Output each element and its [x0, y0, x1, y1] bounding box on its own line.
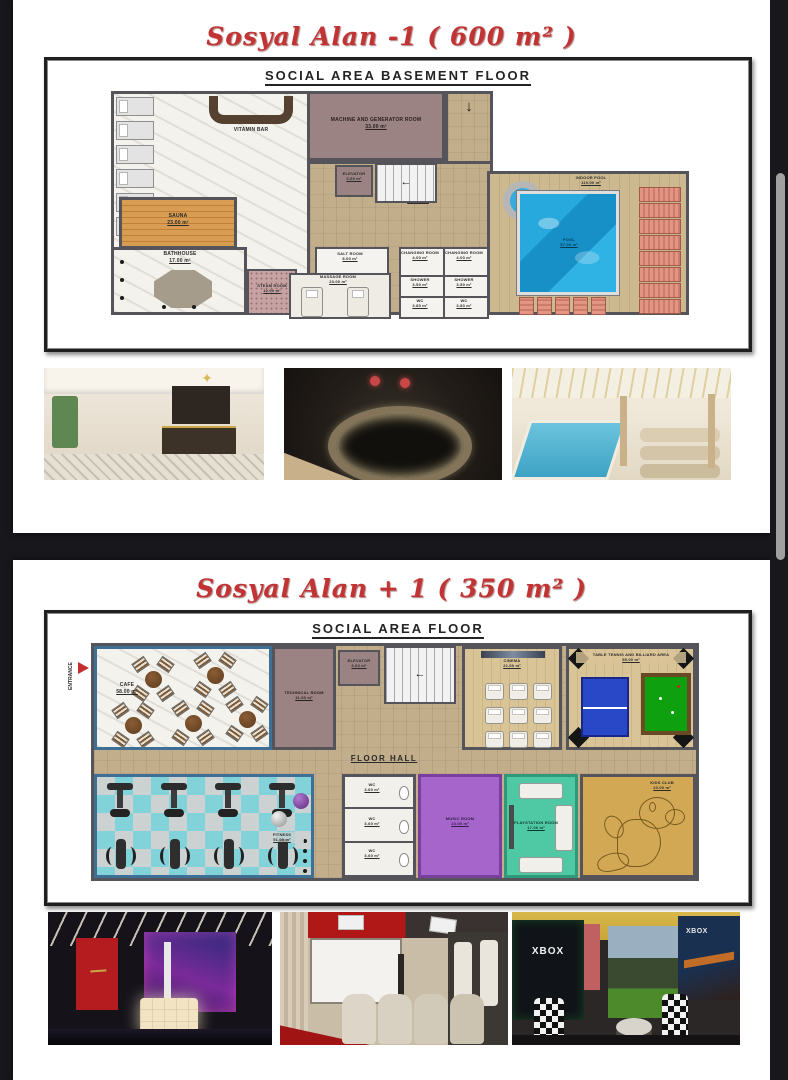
massage-bed [347, 287, 369, 317]
basement-floor-plan: LOUNGE43.00 m² VITAMIN BAR MACHINE AND G… [111, 91, 689, 315]
recliner-seats [342, 994, 376, 1044]
page2-title: Sosyal Alan + 1 ( 350 m² ) [13, 574, 770, 603]
cinema-seat [509, 707, 528, 724]
pink-wall-strip [584, 924, 600, 990]
billiard-table [641, 673, 691, 735]
toilet [399, 853, 409, 867]
cinema-seat [485, 731, 504, 748]
sofa [519, 857, 563, 873]
stair-arrow-icon: ← [386, 668, 454, 680]
shower-2-label: SHOWER3.50 m² [444, 277, 484, 288]
pool-lounger [537, 297, 552, 315]
stool [120, 278, 124, 282]
kids-club-label: KIDS CLUB23.00 m² [638, 780, 686, 791]
stair-arrow-icon: ← [377, 176, 435, 188]
marble-floor [44, 454, 264, 480]
wc-c-label: WC3.60 m² [352, 848, 392, 859]
cinema-seat [485, 683, 504, 700]
page-basement: Sosyal Alan -1 ( 600 m² ) SOCIAL AREA BA… [13, 0, 770, 533]
indoor-pool-photo [512, 368, 731, 480]
wc-a-label: WC3.60 m² [352, 782, 392, 793]
room-cafe [94, 646, 272, 750]
scrollbar-thumb[interactable] [776, 173, 785, 560]
lounger [116, 145, 154, 164]
round-table [616, 1018, 652, 1036]
lounger [116, 97, 154, 116]
xbox-logo-text: XBOX [686, 928, 708, 935]
moss-wall [52, 396, 78, 448]
ac-cassette [338, 915, 364, 930]
lounger [116, 121, 154, 140]
cinema-seat [533, 683, 552, 700]
chandelier-icon: ✦ [192, 370, 222, 390]
exercise-bike [161, 783, 189, 817]
wc-1-label: WC3.80 m² [400, 298, 440, 309]
stool [120, 260, 124, 264]
glossy-floor [48, 1029, 272, 1045]
jacuzzi-photo [284, 368, 502, 480]
cafe-table [225, 697, 269, 741]
cafe-table [171, 701, 215, 745]
xbox-room-photo: XBOX XBOX [512, 912, 740, 1045]
pool-label: POOL57.00 m² [541, 237, 597, 248]
gold-v-logo-icon [90, 959, 107, 972]
changing-1-label: CHANGING ROOM4.00 m² [400, 250, 440, 261]
exercise-bike [215, 783, 243, 817]
room-fitness [94, 774, 314, 878]
fitness-label: FITNESS51.00 m² [260, 832, 304, 843]
bathhouse-label: BATHHOUSE17.00 m² [145, 251, 215, 265]
ceiling [44, 368, 264, 394]
pool-lounger [555, 297, 570, 315]
indoor-pool-label: INDOOR POOL110.00 m² [541, 175, 641, 186]
racing-screen-right: XBOX [678, 916, 740, 1000]
social-floor-plan: ENTRANCE CAFE58.00 m² TECHNICAL ROOM11.0… [91, 643, 699, 881]
night-club-photo [48, 912, 272, 1045]
pool-lounger [573, 297, 588, 315]
sauna-label: SAUNA23.00 m² [141, 213, 215, 227]
cinema-seat [509, 683, 528, 700]
pool-lounger [639, 203, 681, 218]
wc-b-label: WC3.60 m² [352, 816, 392, 827]
home-cinema-photo [280, 912, 508, 1045]
weight [303, 869, 307, 873]
technical-room-label: TECHNICAL ROOM11.00 m² [276, 690, 332, 701]
spa-reception-photo: ✦ [44, 368, 264, 480]
pool-lounger [639, 267, 681, 282]
treadmill [160, 839, 190, 873]
weight [303, 859, 307, 863]
entrance-arrow-icon [78, 662, 89, 674]
elevator-2-label: ELEVATOR3.60 m² [338, 658, 380, 669]
exercise-ball-silver [271, 811, 287, 827]
changing-2-label: CHANGING ROOM4.00 m² [444, 250, 484, 261]
ramp-corridor: ↓ [445, 91, 493, 169]
ceiling-gold-lines [512, 368, 731, 398]
document-viewer: Sosyal Alan -1 ( 600 m² ) SOCIAL AREA BA… [0, 0, 788, 1080]
cinema-screen [481, 651, 545, 658]
floor-hall-label: FLOOR HALL [304, 754, 464, 763]
games-area-label: TABLE TENNIS AND BILLIARD AREA55.00 m² [576, 652, 686, 663]
acoustic-panel [454, 942, 472, 1004]
pool-water [512, 420, 628, 480]
acoustic-panel [480, 940, 498, 1006]
salt-room-label: SALT ROOM8.00 m² [317, 251, 383, 262]
toilet [399, 820, 409, 834]
pool-lounger [639, 251, 681, 266]
playstation-room-label: PLAYSTATION ROOM17.00 m² [506, 820, 566, 831]
pool-lounger [519, 297, 534, 315]
red-light [370, 376, 380, 386]
slatted-wall [280, 912, 308, 1045]
treadmill [268, 839, 298, 873]
cinema-seat [533, 731, 552, 748]
staircase: ← [375, 163, 437, 203]
floor-plan-title: SOCIAL AREA FLOOR [47, 620, 749, 639]
cinema-seat [533, 707, 552, 724]
massage-room-label: MASSAGE ROOM23.00 m² [299, 274, 377, 285]
weight [303, 849, 307, 853]
dark-floor [512, 1035, 740, 1045]
cinema-seat [485, 707, 504, 724]
exercise-bike [107, 783, 135, 817]
page-social-floor: Sosyal Alan + 1 ( 350 m² ) SOCIAL AREA F… [13, 560, 770, 1080]
pool-lounger [639, 283, 681, 298]
red-wall-panel [76, 938, 118, 1010]
red-light [400, 378, 410, 388]
music-room-label: MUSIC ROOM23.00 m² [428, 816, 492, 827]
stool [162, 305, 166, 309]
down-arrow-icon: ↓ [448, 98, 490, 115]
pool-lounger [639, 219, 681, 234]
lounger [116, 169, 154, 188]
toilet [399, 786, 409, 800]
cafe-label: CAFE58.00 m² [102, 682, 152, 696]
pool-lounger [639, 235, 681, 250]
cinema-label: CINEMA21.00 m² [482, 658, 542, 669]
exercise-ball-purple [293, 793, 309, 809]
pool-lounger [639, 299, 681, 314]
massage-bed [301, 287, 323, 317]
sofa [519, 783, 563, 799]
shower-1-label: SHOWER3.50 m² [400, 277, 440, 288]
treadmill [214, 839, 244, 873]
wc-2-label: WC3.80 m² [444, 298, 484, 309]
column [620, 396, 627, 466]
floor-plan-frame: SOCIAL AREA FLOOR ENTRANCE CAFE58.00 m² [44, 610, 752, 906]
column [708, 394, 715, 468]
pool-lounger [639, 187, 681, 202]
elevator-label: ELEVATOR3.60 m² [335, 171, 373, 182]
stool [120, 296, 124, 300]
table-tennis-table [581, 677, 629, 737]
bathhouse-platform [154, 270, 212, 308]
cinema-seat [509, 731, 528, 748]
staircase-2: ← [384, 646, 456, 704]
basement-plan-title: SOCIAL AREA BASEMENT FLOOR [47, 67, 749, 86]
treadmill [106, 839, 136, 873]
cafe-table [111, 703, 155, 747]
basement-plan-frame: SOCIAL AREA BASEMENT FLOOR LOUNGE43.00 m… [44, 57, 752, 352]
back-shelf [172, 386, 230, 424]
stool [192, 305, 196, 309]
entrance-label: ENTRANCE [68, 650, 78, 690]
speaker-tower [398, 954, 404, 1002]
vitamin-bar-label: VITAMIN BAR [201, 127, 301, 134]
scrollbar-track[interactable] [770, 0, 788, 1080]
machine-room-label: MACHINE AND GENERATOR ROOM33.00 m² [317, 117, 435, 131]
round-jacuzzi [328, 406, 472, 480]
pool-lounger [591, 297, 606, 315]
cafe-table [193, 653, 237, 697]
page1-title: Sosyal Alan -1 ( 600 m² ) [13, 22, 770, 51]
vitamin-bar-counter [209, 96, 293, 124]
